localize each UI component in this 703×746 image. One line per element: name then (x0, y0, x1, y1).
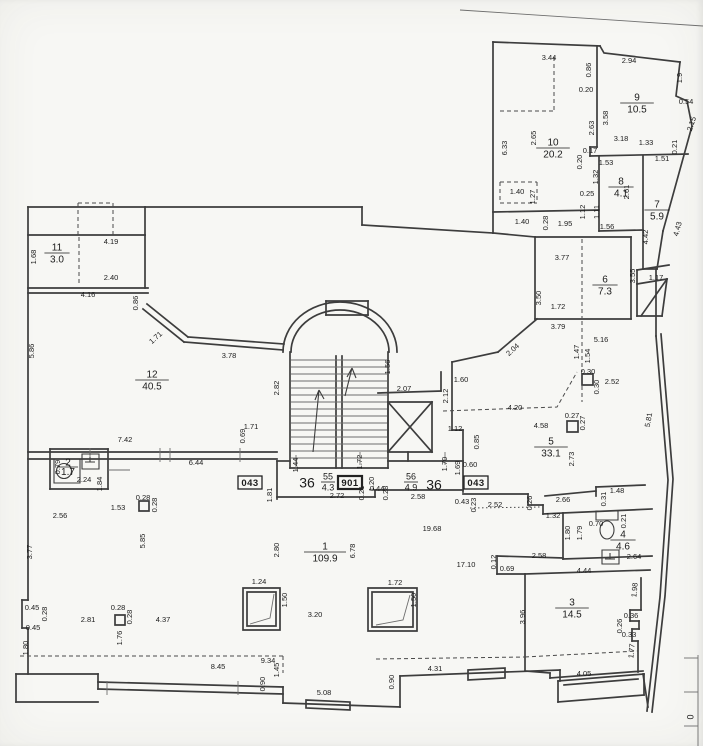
dimension-label: 1.95 (558, 219, 573, 228)
dimension-label: 0.90 (258, 677, 267, 692)
dimension-label: 0.69 (238, 429, 247, 444)
dimension-label: 0.86 (584, 63, 593, 78)
wall (545, 491, 596, 496)
wall (291, 310, 389, 352)
dimension-label: 1.9 (675, 73, 684, 83)
dimension-label: 1.56 (600, 222, 615, 231)
dimension-label: 4.43 (671, 221, 683, 237)
dashed-line (525, 651, 638, 657)
room-area: 4.1 (614, 189, 628, 200)
dimension-label: 0.31 (599, 492, 608, 507)
dimension-label: 0.70 (589, 519, 604, 528)
dimension-label: 4.37 (156, 615, 171, 624)
dimension-label: 1.72 (388, 578, 403, 587)
dimension-label: 0.25 (580, 189, 595, 198)
dimension-label: 2.64 (627, 552, 642, 561)
wall (400, 670, 560, 676)
corridor-number: 36 (426, 477, 442, 493)
dimension-label: 1.53 (111, 503, 126, 512)
dimension-label: 1.51 (655, 154, 670, 163)
dimension-label: 0.60 (463, 460, 478, 469)
room-area: 1.7 (61, 467, 75, 478)
dimension-label: 0.21 (619, 514, 628, 529)
wall (600, 46, 680, 62)
dimension-label: 1.11 (592, 205, 601, 219)
corridor-badge: 043 (241, 478, 258, 489)
dimension-label: 1.80 (563, 526, 572, 541)
dimension-label: 3.77 (25, 545, 34, 560)
dimension-label: 1.77 (626, 643, 636, 658)
wall (567, 421, 578, 432)
dimension-label: 1.12 (578, 205, 587, 220)
dimension-label: 0.45 (25, 603, 40, 612)
dimension-label: 2.58 (411, 492, 426, 501)
edge-mark: 0 (685, 714, 695, 719)
dimension-label: 1.68 (29, 250, 38, 265)
corridor-badge: 901 (341, 478, 359, 489)
room-area: 14.5 (562, 610, 582, 621)
dimension-label: 1.79 (575, 526, 584, 541)
wall (493, 233, 535, 237)
dimension-label: 2.73 (567, 452, 576, 467)
dimension-label: 0.12 (489, 555, 498, 570)
dimension-label: 3.20 (308, 610, 323, 619)
dimension-label: 19.68 (423, 524, 442, 533)
dimension-label: 7.42 (118, 435, 133, 444)
room-area: 109.9 (312, 554, 337, 565)
dimension-label: 0.85 (472, 435, 481, 450)
dimension-label: 1.72 (551, 302, 566, 311)
wall (139, 501, 149, 511)
dimension-label: 1.54 (583, 349, 592, 364)
dimension-label: 2.15 (685, 116, 698, 133)
dimension-label: 0.28 (40, 607, 49, 622)
dimension-label: 2.81 (81, 615, 96, 624)
dimension-label: 0.33 (622, 630, 637, 639)
wall (115, 615, 125, 625)
corridor-number: 36 (299, 475, 315, 491)
dimension-label: 2.40 (104, 273, 119, 282)
dimension-label: 0.28 (111, 603, 126, 612)
corridor-fraction-bottom: 4.9 (405, 482, 418, 492)
dimension-label: 1.50 (280, 593, 289, 608)
dimension-label: 2.07 (397, 384, 412, 393)
dimension-label: 2.82 (272, 381, 281, 396)
dimension-label: 1.32 (591, 170, 600, 185)
dimension-label: 3.58 (601, 111, 610, 126)
dimension-label: 1.17 (649, 273, 664, 282)
room-number: 9 (634, 93, 640, 104)
dimension-label: 1.45 (272, 663, 281, 678)
dimension-label: 0.69 (500, 564, 515, 573)
dimension-label: 4.42 (641, 230, 650, 245)
wall (283, 703, 400, 707)
dimension-label: 5.86 (27, 344, 36, 359)
dimension-label: 5.85 (138, 534, 147, 549)
dimension-label: 5.16 (594, 335, 609, 344)
dimension-label: 0.86 (131, 296, 140, 311)
dimension-label: 5.08 (317, 688, 332, 697)
dimension-label: 3.18 (614, 134, 629, 143)
room-area: 10.5 (627, 105, 647, 116)
dimension-label: 4.31 (428, 664, 443, 673)
room-area: 33.1 (541, 449, 561, 460)
wall (147, 304, 188, 337)
wall (243, 588, 280, 630)
dimension-label: 1.80 (21, 641, 30, 656)
dimension-label: 1.56 (383, 360, 392, 375)
dimension-label: 0.26 (525, 496, 534, 511)
corridor-fraction-top: 55 (323, 471, 333, 481)
room-number: 5 (548, 437, 554, 448)
dimension-label: 3.78 (222, 351, 237, 360)
dimension-label: 8.45 (211, 662, 226, 671)
wall (657, 231, 663, 269)
floor-plan-svg: 3.440.860.202.633.582.941.90.542.156.332… (0, 0, 703, 746)
dimension-label: 5.81 (643, 412, 654, 428)
dimension-label: 1.27 (528, 190, 537, 205)
stair-arrow-icon (345, 368, 356, 396)
dimension-label: 2.80 (272, 543, 281, 558)
dimension-label: 17.10 (457, 560, 476, 569)
dashed-line (376, 657, 525, 659)
dimension-label: 4.20 (508, 403, 523, 412)
dimension-label: 3.77 (555, 253, 570, 262)
dimension-label: 2.65 (529, 131, 538, 146)
thin-line (460, 10, 703, 26)
dimension-label: 1.47 (572, 345, 581, 360)
dimension-label: 1.98 (629, 582, 639, 597)
dimension-label: 0.30 (581, 367, 596, 376)
dimension-label: 4.44 (577, 566, 592, 575)
wall (452, 352, 498, 362)
wall (497, 556, 563, 558)
dimension-label: 6.44 (189, 458, 204, 467)
dimension-label: 0.36 (624, 611, 639, 620)
room-number: 10 (547, 138, 559, 149)
wall (98, 689, 283, 694)
dimension-label: 4.19 (104, 237, 119, 246)
dimension-label: 4.58 (534, 421, 549, 430)
dimension-label: 0.20 (575, 155, 584, 170)
dimension-label: 0.20 (579, 85, 594, 94)
dimension-label: 3.55 (628, 269, 637, 284)
dimension-label: 6.78 (348, 544, 357, 559)
dimension-label: 2.58 (532, 551, 547, 560)
dimension-label: 1.53 (599, 158, 614, 167)
dimension-label: 0.28 (150, 498, 159, 513)
dimension-label: 1.70 (440, 457, 449, 472)
dimension-label: 1.40 (510, 187, 525, 196)
room-number: 6 (602, 275, 608, 286)
dimension-label: 3.79 (551, 322, 566, 331)
dimension-label: 1.24 (252, 577, 267, 586)
dimension-label: 1.84 (95, 477, 104, 492)
dimension-label: 0.90 (387, 675, 396, 690)
dimension-label: 0.17 (583, 146, 598, 155)
thin-line (250, 594, 274, 624)
room-number: 11 (52, 243, 63, 254)
dimension-label: 0.28 (136, 493, 151, 502)
room-number: 4 (620, 530, 626, 541)
dimension-label: 1.71 (147, 329, 164, 345)
room-area: 3.0 (50, 255, 64, 266)
dimension-label: 2.52 (488, 500, 503, 509)
wall (652, 334, 673, 712)
dimension-label: 0.43 (455, 497, 470, 506)
dimension-label: 1.40 (515, 217, 530, 226)
dimension-label: 6.33 (500, 141, 509, 156)
dimension-label: 2.94 (622, 56, 637, 65)
room-area: 5.9 (650, 212, 664, 223)
dimension-label: 2.56 (53, 511, 68, 520)
stair-arrow-icon (313, 390, 324, 452)
dimension-label: 0.28 (381, 486, 390, 501)
dimension-label: 2.24 (77, 475, 92, 484)
dimension-label: 1.50 (409, 593, 418, 608)
dimension-label: 0.27 (578, 416, 587, 431)
wall (493, 42, 600, 46)
dimension-label: 1.32 (546, 511, 561, 520)
wall (558, 695, 644, 702)
room-area: 7.3 (598, 287, 612, 298)
thin-line (376, 595, 410, 625)
floor-plan-scan: 3.440.860.202.633.582.941.90.542.156.332… (0, 0, 703, 746)
dimension-label: 3.96 (518, 610, 527, 625)
dimension-label: 2.63 (587, 121, 596, 136)
corridor-fraction-bottom: 4.3 (322, 482, 335, 492)
dimension-label: 3.44 (542, 53, 557, 62)
dimension-label: 1.69 (453, 461, 462, 476)
room-area: 4.6 (616, 542, 630, 553)
room-number: 12 (146, 370, 158, 381)
dimension-label: 0.23 (469, 498, 478, 513)
wall (98, 682, 283, 687)
dimension-label: 3.50 (534, 291, 543, 306)
dimension-label: 0.30 (592, 380, 601, 395)
room-number: 8 (618, 177, 624, 188)
dimension-label: 0.28 (125, 610, 134, 625)
wall (362, 225, 493, 233)
dimension-label: 1.12 (448, 424, 463, 433)
dimension-label: 2.52 (605, 377, 620, 386)
dimension-label: 1.72 (355, 455, 364, 470)
dimension-label: 2.66 (556, 495, 571, 504)
dimension-label: 0.21 (670, 140, 679, 155)
dimension-label: 4.16 (81, 290, 96, 299)
dimension-label: 1.48 (610, 486, 625, 495)
corridor-fraction-top: 56 (406, 471, 416, 481)
room-number: 1 (322, 542, 328, 553)
dimension-label: 1.44 (291, 458, 300, 473)
room-area: 40.5 (142, 382, 162, 393)
room-number: 7 (654, 200, 660, 211)
dimension-label: 0.28 (541, 216, 550, 231)
room-area: 20.2 (543, 150, 563, 161)
dimension-label: 0.45 (26, 623, 41, 632)
room-number: 3 (569, 598, 575, 609)
dimension-label: 0.54 (679, 97, 694, 106)
dimension-label: 4.05 (577, 669, 592, 678)
dimension-label: 1.81 (265, 488, 274, 503)
corridor-badge: 043 (467, 478, 484, 489)
dimension-label: 2.12 (441, 389, 450, 404)
wall (647, 336, 668, 711)
dimension-label: 1.60 (454, 375, 469, 384)
dimension-label: 1.33 (639, 138, 654, 147)
dimension-label: 1.76 (115, 631, 124, 646)
